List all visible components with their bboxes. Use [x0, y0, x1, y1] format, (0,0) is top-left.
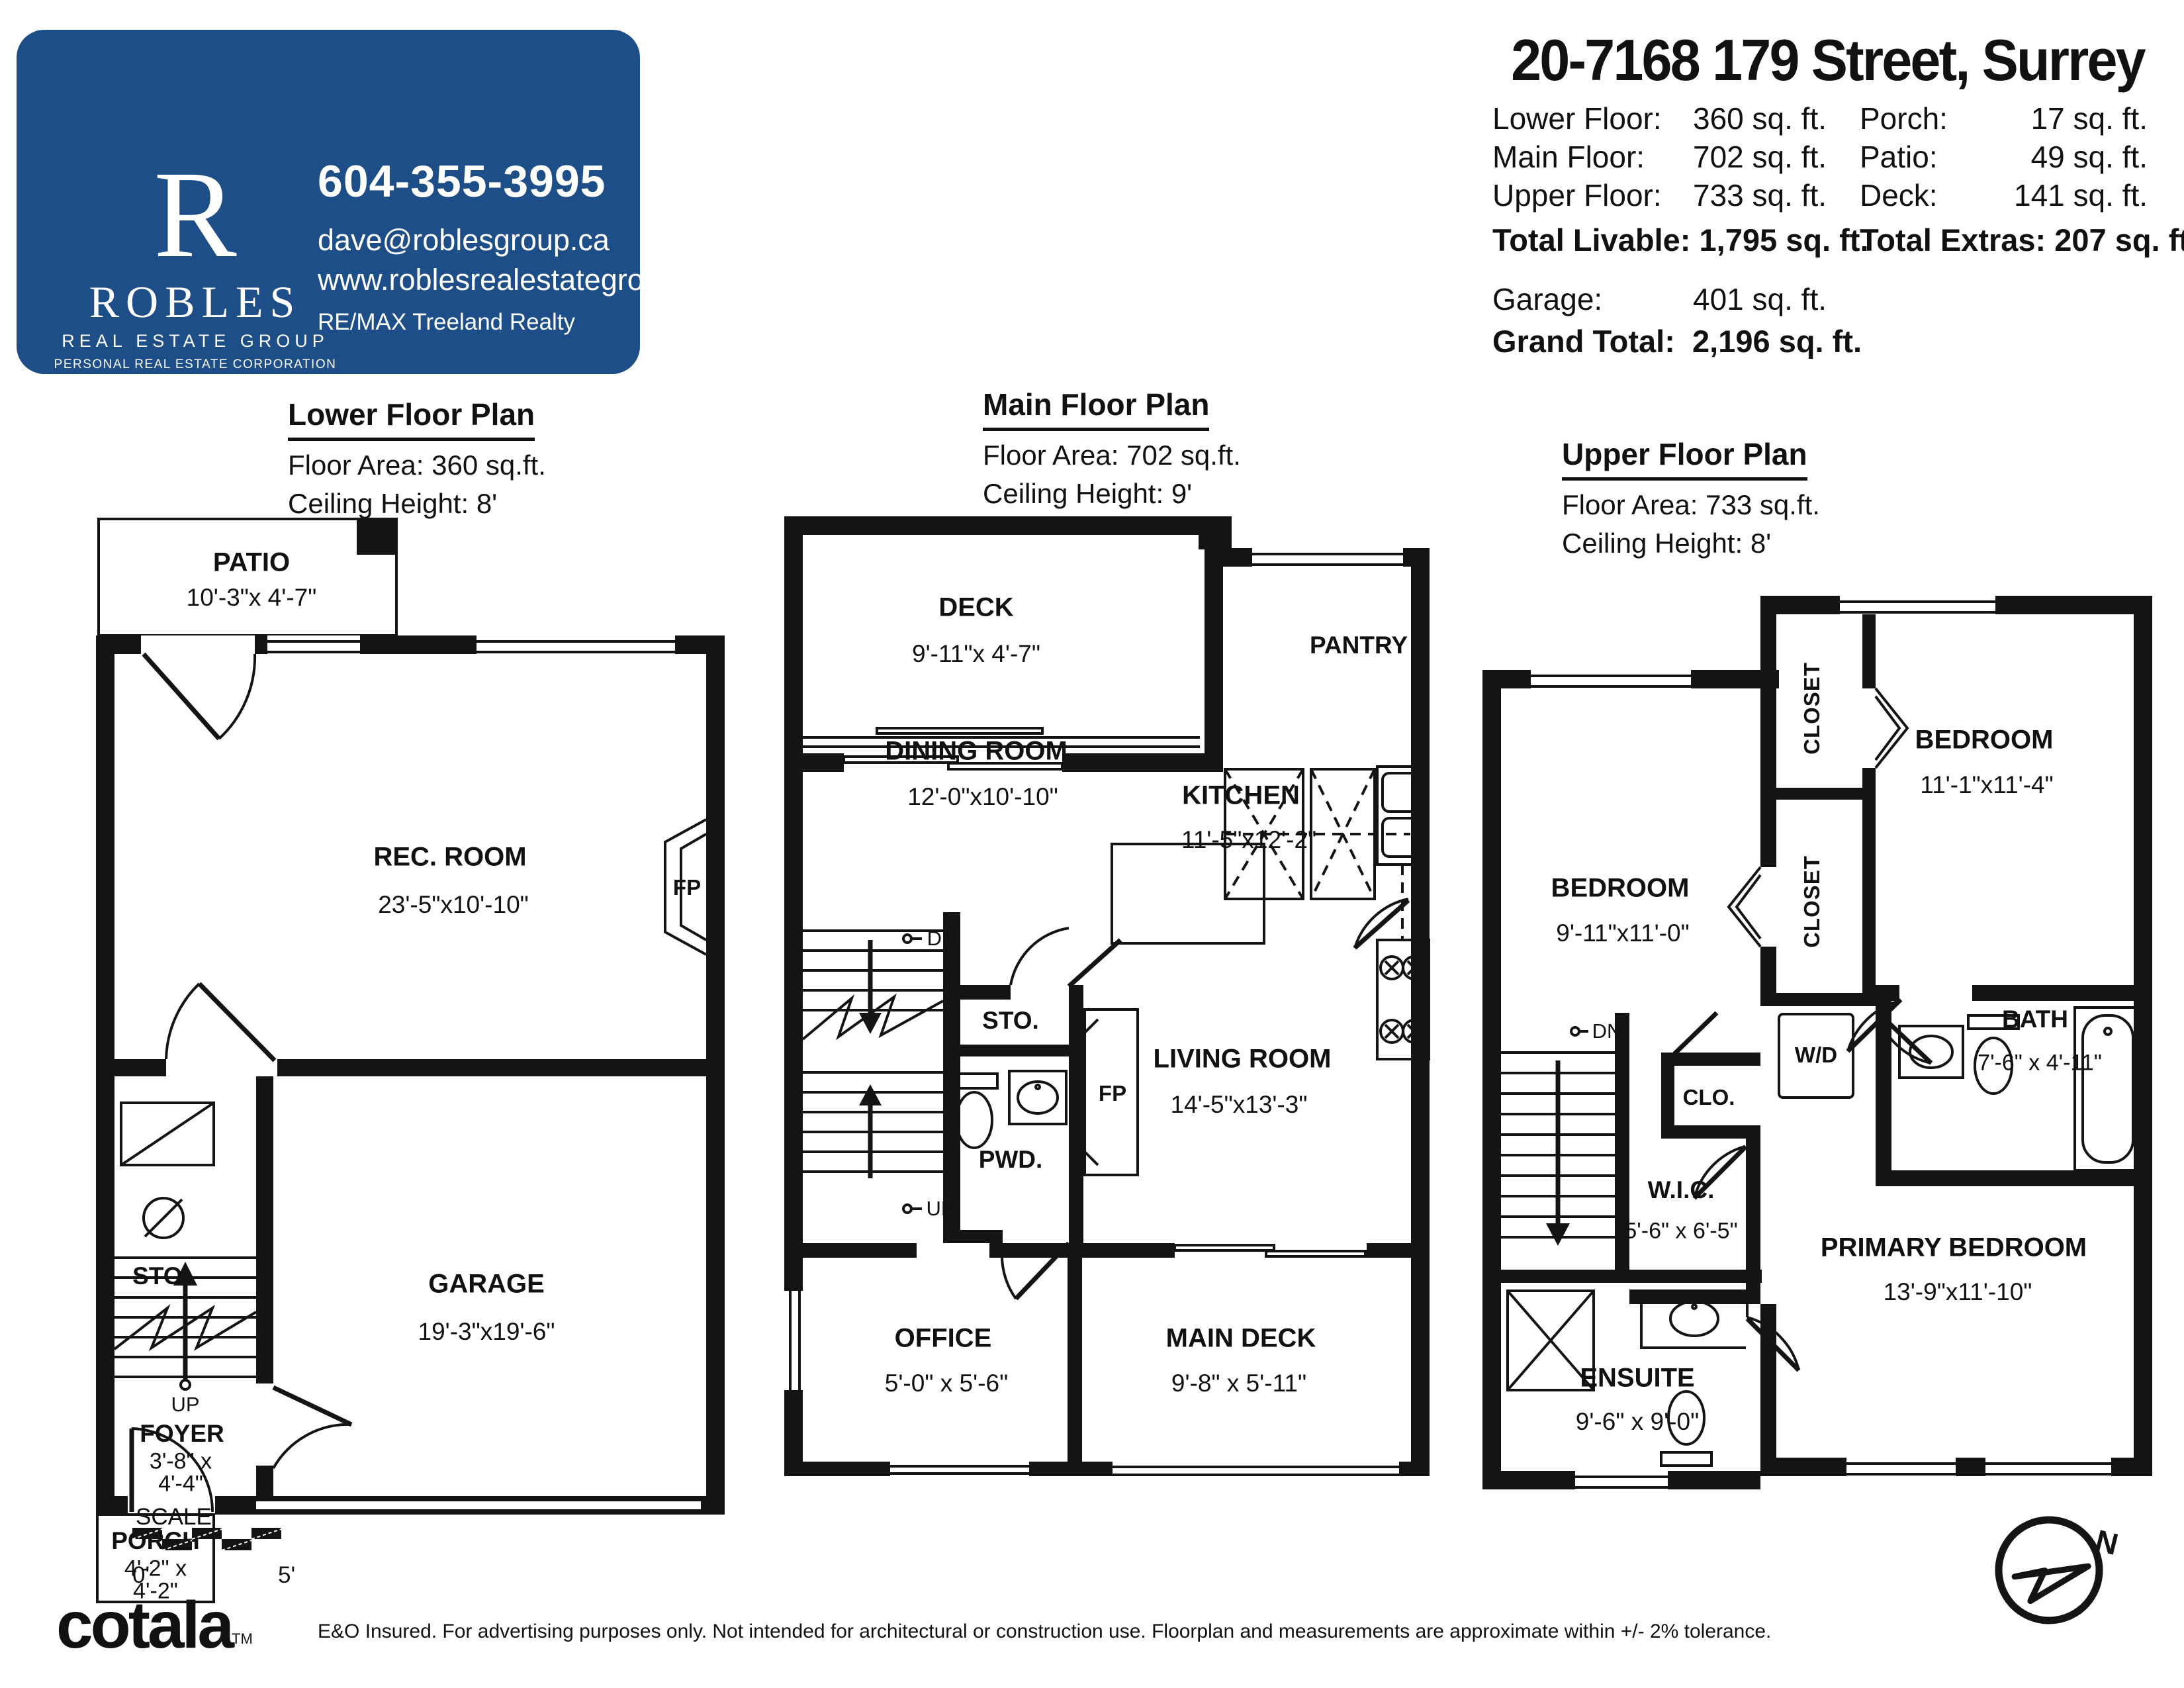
fireplace-label: FP [1099, 1081, 1126, 1106]
upper-plan-header: Upper Floor Plan Floor Area: 733 sq.ft. … [1562, 434, 1820, 563]
area-row: Upper Floor:733 sq. ft. [1492, 177, 1827, 216]
room-label-wic: W.I.C. [1648, 1176, 1715, 1204]
scale-bar [132, 1528, 291, 1554]
floorplan-flyer: R ROBLES REAL ESTATE GROUP PERSONAL REAL… [0, 0, 2184, 1688]
room-dims-wic: 5'-6" x 6'-5" [1624, 1219, 1737, 1244]
garage-label: Garage: [1492, 281, 1602, 317]
logo-subtext: PERSONAL REAL ESTATE CORPORATION [43, 357, 347, 372]
cotala-wordmark: cotala [56, 1588, 232, 1662]
area-row: Deck:141 sq. ft. [1860, 177, 2148, 216]
stairs-up-label: UP [171, 1393, 199, 1417]
scale-start: 0' [132, 1562, 150, 1589]
scale-end: 5' [278, 1562, 295, 1589]
agent-email: dave@roblesgroup.ca [318, 223, 610, 258]
upper-floor-plan: CLOSET CLOSET BEDROOM 11'-1"x11'-4" BEDR… [1476, 589, 2158, 1496]
area-value: 141 sq. ft. [2014, 177, 2148, 216]
room-label-bedroom-right: BEDROOM [1915, 726, 2054, 755]
room-label-bedroom-left: BEDROOM [1551, 874, 1690, 904]
lower-floor-plan: PATIO 10'-3"x 4'-7" REC. ROOM 23'-5"x10'… [89, 510, 731, 1609]
window [264, 635, 363, 654]
logo-name: ROBLES [43, 276, 347, 328]
room-label-living: LIVING ROOM [1154, 1045, 1332, 1074]
room-dims-bath: 7'-6" x 4'-11" [1978, 1051, 2102, 1076]
total-livable-label: Total Livable: [1492, 222, 1690, 258]
stairs-dn-label: DN [927, 927, 957, 951]
grand-total-value: 2,196 sq. ft. [1692, 324, 1862, 359]
area-label: Upper Floor: [1492, 177, 1662, 216]
grand-total-label: Grand Total: [1492, 324, 1675, 359]
property-address: 20-7168 179 Street, Surrey [1511, 26, 2144, 94]
window [784, 1291, 803, 1390]
agent-card: R ROBLES REAL ESTATE GROUP PERSONAL REAL… [17, 30, 640, 374]
room-dims-foyer-2: 4'-4" [158, 1472, 203, 1497]
room-label-office: OFFICE [895, 1324, 992, 1354]
room-dims-patio: 10'-3"x 4'-7" [187, 584, 317, 612]
robles-logo-icon: R [76, 152, 314, 277]
total-livable-value: 1,795 sq. ft. [1700, 222, 1869, 258]
window [1575, 1471, 1668, 1489]
total-extras-label: Total Extras: [1860, 222, 2046, 258]
washer-dryer-label: W/D [1795, 1043, 1837, 1068]
room-dims-garage: 19'-3"x19'-6" [418, 1318, 555, 1346]
room-label-closet-2: CLOSET [1799, 855, 1825, 948]
logo-tagline: REAL ESTATE GROUP [43, 331, 347, 352]
area-label: Deck: [1860, 177, 1938, 216]
area-row: Patio:49 sq. ft. [1860, 139, 2148, 177]
room-label-dining: DINING ROOM [885, 737, 1068, 767]
room-label-storage: STO. [132, 1262, 189, 1290]
cotala-logo: cotalaTM [56, 1587, 253, 1664]
window [1527, 670, 1694, 688]
total-extras-value: 207 sq. ft. [2054, 222, 2184, 258]
room-dims-kitchen: 11'-5"x12'-2" [1181, 826, 1316, 854]
areas-right-column: Porch:17 sq. ft. Patio:49 sq. ft. Deck:1… [1860, 101, 2148, 216]
window [1837, 596, 1999, 614]
area-row: Lower Floor:360 sq. ft. [1492, 101, 1827, 139]
room-dims-rec-room: 23'-5"x10'-10" [378, 891, 529, 919]
room-label-powder: PWD. [979, 1146, 1043, 1174]
lower-plan-title: Lower Floor Plan [288, 394, 535, 441]
window [473, 635, 678, 654]
main-plan-header: Main Floor Plan Floor Area: 702 sq.ft. C… [983, 384, 1241, 513]
grand-total: Grand Total: 2,196 sq. ft. [1492, 323, 1862, 359]
main-plan-area: Floor Area: 702 sq.ft. [983, 440, 1241, 471]
area-label: Lower Floor: [1492, 101, 1662, 139]
room-dims-deck: 9'-11"x 4'-7" [912, 640, 1040, 668]
room-label-pantry: PANTRY [1310, 632, 1408, 659]
room-dims-bedroom-left: 9'-11"x11'-0" [1556, 919, 1690, 947]
area-label: Main Floor: [1492, 139, 1645, 177]
area-row: Porch:17 sq. ft. [1860, 101, 2148, 139]
area-label: Patio: [1860, 139, 1938, 177]
room-label-bath: BATH [2002, 1006, 2068, 1033]
area-value: 360 sq. ft. [1693, 101, 1827, 139]
fireplace-label: FP [673, 875, 701, 900]
stair-treads [803, 931, 943, 1172]
area-value: 702 sq. ft. [1693, 139, 1827, 177]
room-dims-main-deck: 9'-8" x 5'-11" [1171, 1370, 1306, 1397]
scale-label: SCALE [136, 1504, 212, 1530]
lower-plan-area: Floor Area: 360 sq.ft. [288, 449, 546, 481]
stairs-dn-label: DN [1592, 1019, 1622, 1043]
room-label-garage: GARAGE [428, 1270, 545, 1299]
room-dims-office: 5'-0" x 5'-6" [885, 1370, 1008, 1397]
lower-plan-header: Lower Floor Plan Floor Area: 360 sq.ft. … [288, 394, 546, 523]
compass-n-label: N [2092, 1523, 2118, 1562]
garage-row: Garage:401 sq. ft. [1492, 281, 1827, 317]
room-label-ensuite: ENSUITE [1580, 1364, 1694, 1393]
upper-plan-area: Floor Area: 733 sq.ft. [1562, 489, 1820, 520]
upper-plan-title: Upper Floor Plan [1562, 434, 1807, 481]
upper-plan-ceiling: Ceiling Height: 8' [1562, 528, 1771, 559]
agent-brokerage: RE/MAX Treeland Realty [318, 309, 575, 336]
stairs-up-label: UP [926, 1197, 954, 1221]
room-label-storage: STO. [982, 1007, 1039, 1035]
total-extras: Total Extras: 207 sq. ft. [1860, 222, 2184, 258]
room-label-closet-1: CLOSET [1799, 662, 1825, 755]
window [890, 1462, 1029, 1476]
main-floor-plan: DECK 9'-11"x 4'-7" PANTRY KITCHEN 11'-5"… [778, 510, 1433, 1496]
room-label-main-deck: MAIN DECK [1166, 1324, 1316, 1354]
room-label-primary: PRIMARY BEDROOM [1821, 1233, 2087, 1263]
window [1249, 548, 1406, 567]
garage-value: 401 sq. ft. [1693, 281, 1827, 317]
area-label: Porch: [1860, 101, 1948, 139]
compass-icon: N [1985, 1503, 2118, 1635]
room-label-foyer: FOYER [140, 1420, 224, 1448]
disclaimer-text: E&O Insured. For advertising purposes on… [318, 1620, 1771, 1643]
area-value: 733 sq. ft. [1693, 177, 1827, 216]
room-dims-ensuite: 9'-6" x 9'-0" [1576, 1408, 1699, 1436]
room-dims-dining: 12'-0"x10'-10" [907, 783, 1058, 811]
room-label-patio: PATIO [213, 548, 290, 578]
room-label-rec-room: REC. ROOM [373, 843, 526, 872]
room-label-closet-small: CLO. [1683, 1085, 1735, 1110]
room-label-kitchen: KITCHEN [1182, 781, 1300, 811]
room-label-deck: DECK [938, 593, 1013, 623]
room-dims-primary: 13'-9"x11'-10" [1884, 1278, 2032, 1306]
area-value: 49 sq. ft. [2031, 139, 2148, 177]
room-dims-bedroom-right: 11'-1"x11'-4" [1920, 771, 2054, 799]
agent-website: www.roblesrealestategroup.ca [318, 263, 717, 297]
area-row: Main Floor:702 sq. ft. [1492, 139, 1827, 177]
agent-phone: 604-355-3995 [318, 156, 606, 207]
room-dims-living: 14'-5"x13'-3" [1170, 1091, 1307, 1119]
main-plan-title: Main Floor Plan [983, 384, 1209, 431]
cotala-tm: TM [232, 1630, 253, 1647]
areas-left-column: Lower Floor:360 sq. ft. Main Floor:702 s… [1492, 101, 1827, 216]
main-plan-ceiling: Ceiling Height: 9' [983, 478, 1192, 509]
area-value: 17 sq. ft. [2031, 101, 2148, 139]
total-livable: Total Livable: 1,795 sq. ft. [1492, 222, 1869, 258]
